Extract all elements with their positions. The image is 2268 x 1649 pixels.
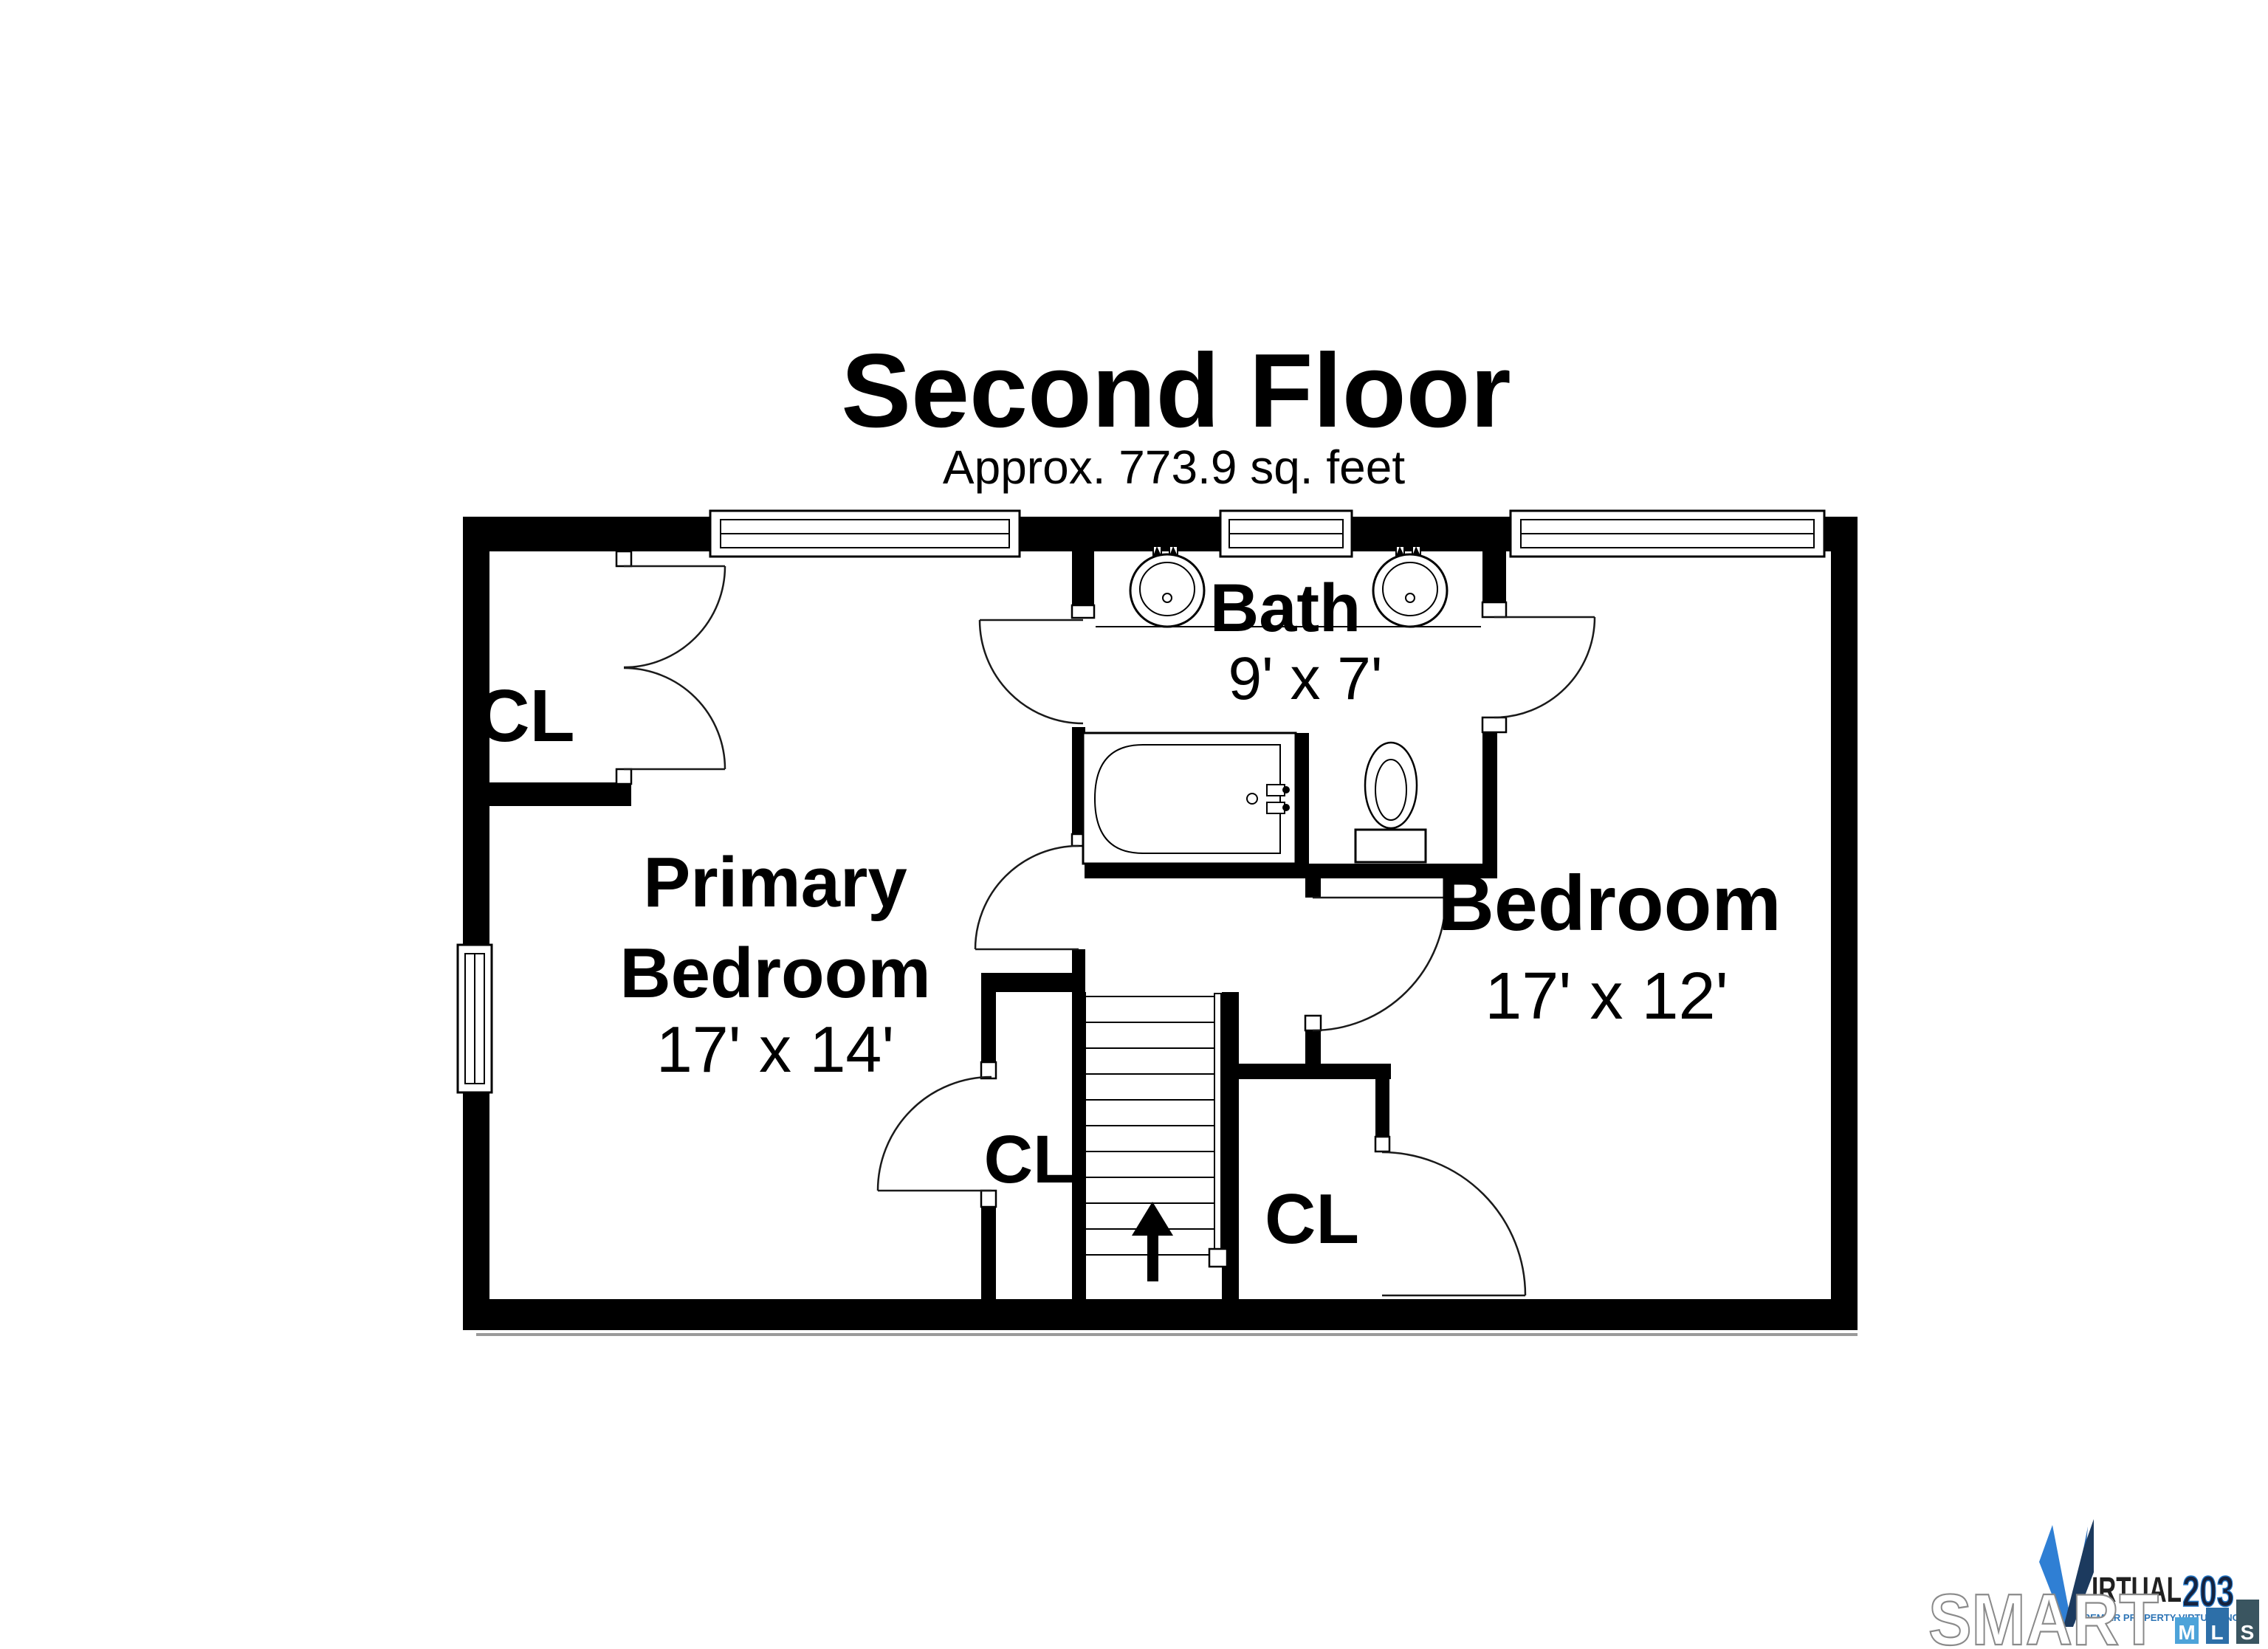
staircase [1086,994,1227,1281]
stair-railing [1214,994,1221,1250]
label-primary-bedroom-line1: Primary [643,843,907,922]
closet-top-left-double-door-icon [624,566,725,769]
floor-plan-canvas: Second Floor Approx. 773.9 sq. feet [0,0,2268,1649]
label-primary-bedroom-line2: Bedroom [619,934,930,1013]
bath-right-door-icon [1494,617,1595,717]
window-top-middle-icon [1220,511,1352,557]
label-bedroom-dims: 17' x 12' [1485,960,1728,1033]
page-title: Second Floor [841,332,1511,450]
window-left-wall-icon [458,945,492,1092]
label-bedroom: Bedroom [1437,860,1781,947]
page-subtitle: Approx. 773.9 sq. feet [943,441,1405,494]
label-closet-lower-left: CL [984,1122,1075,1197]
label-closet-lower-right: CL [1265,1180,1359,1259]
toilet-icon [1355,743,1426,862]
bath-left-door-icon [980,620,1083,723]
floor-plan-page: Second Floor Approx. 773.9 sq. feet [0,0,2268,1649]
window-top-left-icon [710,511,1020,557]
smartmls-s-letter: S [2241,1621,2255,1644]
smartmls-m-letter: M [2178,1621,2195,1644]
closet-lower-right-door-icon [1382,1152,1525,1295]
stair-railing-newel [1209,1249,1227,1267]
bathtub-icon [1083,733,1296,864]
label-primary-bedroom-dims: 17' x 14' [656,1013,894,1086]
window-top-right-icon [1511,511,1824,557]
stairs-up-arrow-icon [1132,1202,1173,1281]
smartmls-wordmark: SMART [1928,1579,2159,1649]
label-closet-top-left: CL [476,675,574,757]
bedroom-door-icon [1313,898,1446,1030]
closet-lower-left-door-icon [878,1077,992,1191]
sink-left-icon [1130,546,1204,627]
label-bath-dims: 9' x 7' [1228,645,1382,712]
label-bath: Bath [1210,571,1361,646]
sink-right-icon [1373,546,1447,627]
smartmls-l-letter: L [2210,1621,2223,1644]
primary-bedroom-door-icon [975,846,1079,949]
